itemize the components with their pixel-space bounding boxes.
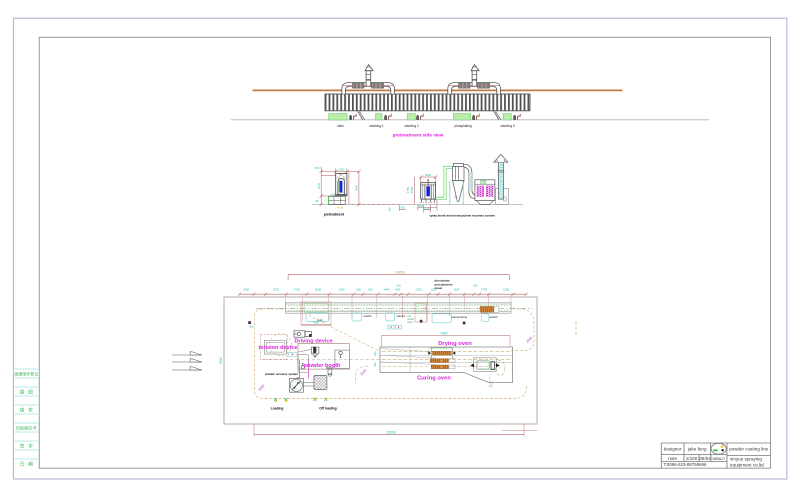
svg-text:3000: 3000 — [315, 288, 322, 292]
svg-text:Driving device: Driving device — [294, 339, 332, 345]
svg-text:wash3: wash3 — [489, 315, 498, 319]
svg-text:06/54: 06/54 — [699, 456, 711, 461]
svg-text:5000: 5000 — [490, 380, 494, 387]
svg-text:washing 2: washing 2 — [404, 124, 419, 128]
svg-text:900: 900 — [368, 288, 373, 292]
svg-text:3000: 3000 — [425, 173, 432, 177]
svg-text:powder recovery system: powder recovery system — [265, 372, 298, 376]
svg-text:spray booth and monocyclone re: spray booth and monocyclone recovery sys… — [429, 213, 495, 217]
svg-text:900: 900 — [373, 362, 377, 367]
svg-text:note: note — [668, 456, 677, 461]
svg-text:借通用件登记: 借通用件登记 — [14, 370, 38, 376]
svg-text:A60: A60 — [396, 285, 401, 288]
svg-text:24050: 24050 — [395, 270, 405, 274]
svg-text:wash1: wash1 — [363, 314, 372, 318]
svg-text:1700: 1700 — [293, 288, 300, 292]
svg-text:washing 1: washing 1 — [369, 124, 384, 128]
svg-text:powder coating line: powder coating line — [729, 446, 768, 451]
svg-text:1000: 1000 — [424, 206, 431, 210]
svg-text:pretreatment: pretreatment — [324, 213, 345, 217]
svg-text:1445: 1445 — [383, 288, 390, 292]
svg-text:tank: tank — [407, 320, 413, 324]
svg-text:washing 3: washing 3 — [500, 124, 515, 128]
svg-text:2200: 2200 — [503, 288, 510, 292]
svg-text:T:0086-523-88759666: T:0086-523-88759666 — [664, 462, 708, 467]
svg-text:300: 300 — [315, 166, 320, 170]
svg-text:designer: designer — [664, 446, 682, 451]
svg-text:skim: skim — [249, 325, 254, 328]
svg-text:1/100: 1/100 — [686, 456, 698, 461]
svg-text:900: 900 — [373, 351, 377, 356]
svg-text:150: 150 — [388, 207, 392, 212]
svg-text:Off loading: Off loading — [319, 406, 336, 410]
svg-text:描 图: 描 图 — [20, 389, 33, 396]
svg-text:22000: 22000 — [386, 430, 396, 434]
svg-text:powder booth: powder booth — [304, 363, 342, 369]
svg-text:描 校: 描 校 — [20, 407, 33, 414]
svg-text:skim: skim — [337, 124, 344, 128]
svg-text:1450: 1450 — [338, 288, 345, 292]
svg-text:xinyue spraying: xinyue spraying — [730, 457, 762, 462]
svg-text:900: 900 — [356, 288, 361, 292]
svg-text:150: 150 — [400, 206, 405, 210]
svg-text:旧底图总号: 旧底图总号 — [16, 425, 37, 432]
svg-text:A60: A60 — [473, 285, 478, 288]
svg-text:jake feng: jake feng — [687, 446, 707, 451]
svg-text:Loading: Loading — [271, 406, 284, 410]
svg-text:1500: 1500 — [453, 288, 460, 292]
svg-text:60: 60 — [315, 199, 319, 203]
svg-text:tension device: tension device — [259, 345, 298, 351]
svg-text:equipment co,ltd: equipment co,ltd — [730, 462, 764, 467]
svg-text:Drying oven: Drying oven — [438, 341, 472, 347]
svg-text:4500: 4500 — [313, 321, 319, 325]
svg-text:Curing oven: Curing oven — [417, 375, 451, 381]
svg-text:2725: 2725 — [273, 288, 280, 292]
svg-text:1500: 1500 — [243, 288, 250, 292]
svg-text:600: 600 — [418, 204, 423, 208]
svg-text:1000: 1000 — [338, 168, 345, 172]
svg-text:2725: 2725 — [317, 182, 321, 189]
svg-text:7300: 7300 — [440, 331, 448, 335]
svg-text:phosphating: phosphating — [454, 124, 472, 128]
svg-text:7500: 7500 — [219, 357, 223, 364]
svg-text:phosphating: phosphating — [451, 315, 467, 319]
svg-text:签 字: 签 字 — [20, 443, 33, 449]
svg-text:3445: 3445 — [355, 184, 359, 191]
svg-text:900: 900 — [395, 288, 400, 292]
svg-text:1500: 1500 — [410, 186, 414, 193]
svg-text:wash2: wash2 — [397, 314, 406, 318]
svg-text:tower: tower — [435, 286, 444, 290]
svg-text:1795: 1795 — [481, 288, 488, 292]
svg-text:pretreatment side view: pretreatment side view — [393, 133, 444, 138]
svg-text:1700: 1700 — [415, 288, 422, 292]
svg-text:885&27: 885&27 — [712, 457, 725, 461]
